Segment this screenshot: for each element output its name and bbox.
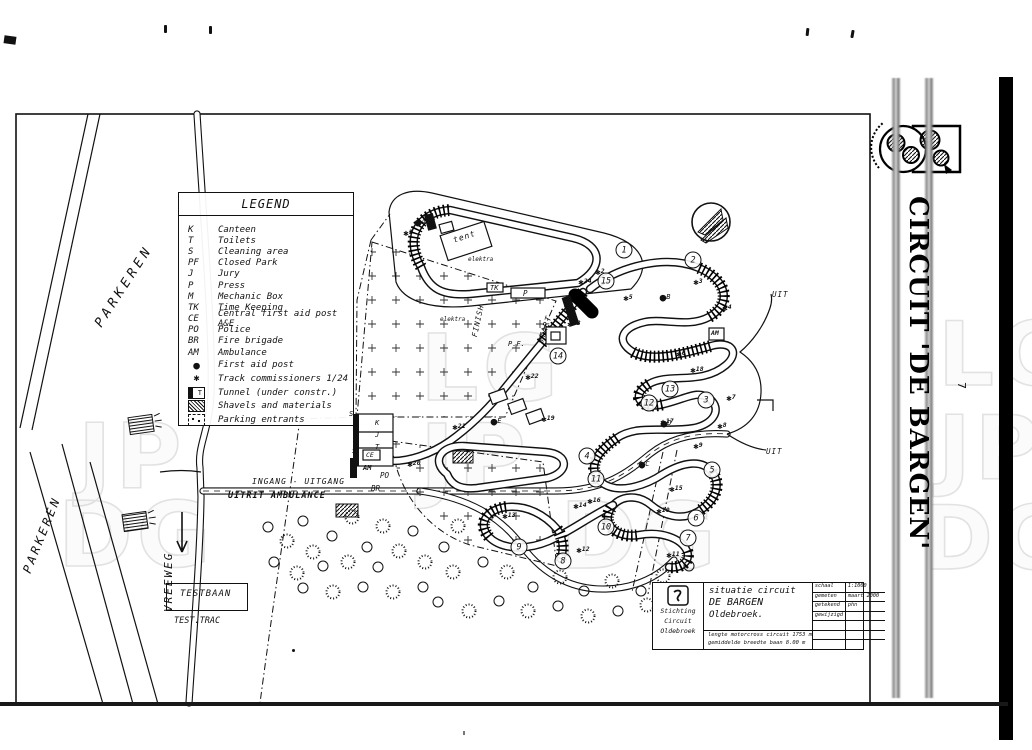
- map-label-ce: CE: [366, 451, 374, 459]
- commissioner-number: 8: [723, 421, 727, 429]
- spec-lines: lengte motorcross circuit 1753 mgemiddel…: [704, 630, 812, 649]
- spec-line: gemiddelde breedte baan 8.00 m: [708, 640, 812, 648]
- commissioner-number: 21: [458, 422, 466, 430]
- corner-marker: 10: [598, 519, 615, 536]
- binder-shadow-bar: [891, 78, 901, 698]
- legend-item-label: Parking entrants: [218, 415, 305, 425]
- legend-item-key: PO: [188, 325, 218, 335]
- commissioner-star-glyph: ✱: [193, 374, 199, 384]
- commissioner-marker: ✱21: [452, 417, 465, 433]
- commissioner-marker: ✱6: [676, 344, 685, 360]
- hatch-box-icon: [188, 400, 205, 412]
- commissioner-marker: ✱1: [403, 223, 412, 239]
- corner-marker: 12: [641, 395, 658, 412]
- meta-key: gewijzigd: [813, 612, 846, 621]
- commissioner-marker: ✱9: [693, 436, 702, 452]
- meta-row: gewijzigd: [813, 612, 885, 622]
- parking-entrant-symbol: [122, 510, 157, 531]
- meta-value: [846, 640, 885, 649]
- first-aid-dot-icon: ●: [491, 415, 498, 428]
- commissioner-marker: ✱15: [669, 479, 682, 495]
- legend-title: LEGEND: [179, 193, 353, 216]
- subject-line: situatie circuit: [709, 586, 812, 597]
- legend-item-key: T: [188, 236, 218, 246]
- map-label-uitrit-ambulance: UITRIT AMBULANCE: [228, 491, 326, 501]
- legend-item: KCanteen: [188, 224, 353, 235]
- legend-item-key: PF: [188, 258, 218, 268]
- first-aid-marker: ●D: [661, 414, 672, 430]
- legend-item-key: K: [188, 225, 218, 235]
- meta-key: [813, 631, 846, 640]
- commissioner-number: 20: [413, 459, 421, 467]
- first-aid-marker: ●A: [415, 213, 426, 229]
- map-label-s-1: S: [349, 410, 353, 418]
- commissioner-marker: ✱4: [722, 298, 731, 314]
- legend-item: CECentral first aid post A&E: [188, 314, 353, 325]
- corner-marker: 8: [555, 553, 572, 570]
- meta-row: schaal1:1000: [813, 583, 885, 593]
- first-aid-letter: D: [667, 419, 671, 427]
- meta-value: phn: [846, 602, 885, 611]
- commissioner-number: 23: [573, 319, 581, 327]
- first-aid-dot-icon: ●: [661, 417, 668, 430]
- meta-key: [813, 621, 846, 630]
- commissioner-marker: ✱11: [666, 545, 679, 561]
- first-aid-letter: C: [645, 460, 649, 468]
- first-aid-dot-icon: ●: [188, 360, 205, 371]
- map-label-testbaan: TESTBAAN: [180, 589, 231, 599]
- first-aid-letter: A: [421, 218, 425, 226]
- map-label-uit-2: UIT: [766, 447, 783, 456]
- tunnel-box-icon: T: [188, 387, 205, 399]
- first-aid-dot-icon: ●: [660, 291, 667, 304]
- corner-marker: 3: [698, 392, 715, 409]
- legend-item-key: AM: [188, 348, 218, 358]
- first-aid-letter: B: [666, 293, 670, 301]
- commissioner-marker: ✱24: [578, 272, 591, 288]
- legend-symbol-item: ✱Track commissioners 1/24: [188, 372, 353, 385]
- legend-item-key: BR: [188, 336, 218, 346]
- meta-key: gemeten: [813, 593, 846, 602]
- title-block-meta: schaal1:1000gemetenmaart 2000getekendphn…: [813, 583, 885, 649]
- map-label-bld-j: J: [375, 431, 379, 439]
- legend-item-label: Canteen: [218, 225, 256, 235]
- map-label-po: PO: [380, 471, 389, 480]
- commissioner-marker: ✱7: [726, 388, 735, 404]
- commissioner-marker: ✱23: [567, 314, 580, 330]
- scan-edge-bar: [999, 77, 1013, 740]
- commissioner-marker: ✱13: [502, 506, 515, 522]
- corner-marker: 9: [511, 539, 528, 556]
- north-arrow-icon: [692, 203, 730, 243]
- legend-item-label: Closed Park: [218, 258, 278, 268]
- spec-line: lengte motorcross circuit 1753 m: [708, 632, 812, 640]
- subject-lines: situatie circuitDE BARGENOldebroek.: [704, 583, 812, 630]
- commissioner-marker: ✱2: [595, 262, 604, 278]
- map-label-pf: P.F.: [508, 340, 525, 348]
- legend-item-label: First aid post: [218, 360, 294, 370]
- meta-value: maart 2000: [846, 593, 885, 602]
- commissioner-marker: ✱5: [623, 288, 632, 304]
- title-block: StichtingCircuitOldebroek situatie circu…: [652, 582, 864, 650]
- corner-marker: 11: [588, 471, 605, 488]
- legend-item-key: S: [188, 247, 218, 257]
- map-label-br: BR: [371, 484, 380, 493]
- legend-item-label: Tunnel (under constr.): [218, 388, 337, 398]
- legend-item-label: Shavels and materials: [218, 401, 332, 411]
- commissioner-marker: ✱10: [656, 501, 669, 517]
- commissioner-number: 15: [675, 484, 683, 492]
- commissioner-number: 13: [508, 511, 516, 519]
- legend-symbol-item: Parking entrants: [188, 414, 353, 427]
- legend-item-label: Press: [218, 281, 245, 291]
- commissioner-number: 1: [409, 228, 413, 236]
- map-label-tk: TK: [490, 284, 498, 292]
- meta-row: gemetenmaart 2000: [813, 593, 885, 603]
- commissioner-number: 9: [699, 441, 703, 449]
- commissioner-number: 10: [662, 506, 670, 514]
- meta-row: [813, 631, 885, 641]
- commissioner-number: 24: [584, 277, 592, 285]
- org-line: Stichting: [660, 607, 695, 617]
- first-aid-letter: E: [497, 417, 501, 425]
- commissioner-star-icon: ✱: [188, 374, 205, 384]
- commissioner-number: 4: [728, 303, 732, 311]
- map-label-test-trac: TEST.TRAC: [174, 616, 220, 626]
- legend-item-label: Mechanic Box: [218, 292, 283, 302]
- commissioner-number: 11: [672, 550, 680, 558]
- press-building: [511, 288, 545, 298]
- commissioner-number: 16: [593, 496, 601, 504]
- scan-bottom-edge: [0, 702, 1008, 706]
- legend-item-key: J: [188, 269, 218, 279]
- commissioner-number: 19: [547, 414, 555, 422]
- legend-item: TToilets: [188, 235, 353, 246]
- map-label-uit-1: UIT: [772, 290, 789, 299]
- shavels-area: [336, 504, 358, 517]
- title-block-subject: situatie circuitDE BARGENOldebroek. leng…: [704, 583, 813, 649]
- map-label-p: P: [523, 289, 528, 298]
- subject-line: Oldebroek.: [709, 610, 812, 621]
- legend-item-label: Jury: [218, 269, 240, 279]
- first-aid-dot-icon: ●: [639, 458, 646, 471]
- scanned-page: LGJPDGJPDGLGJPDG: [0, 0, 1032, 750]
- map-label-elektra-2: elektra: [440, 316, 465, 323]
- subject-line: DE BARGEN: [709, 597, 812, 610]
- legend-item: SCleaning area: [188, 246, 353, 257]
- commissioner-marker: ✱22: [525, 367, 538, 383]
- map-label-am-1: AM: [363, 464, 371, 472]
- corner-marker: 13: [662, 381, 679, 398]
- commissioner-number: 7: [732, 393, 736, 401]
- meta-value: [846, 631, 885, 640]
- legend-symbol-item: Shavels and materials: [188, 400, 353, 413]
- corner-marker: 14: [550, 348, 567, 365]
- legend-box: LEGEND KCanteenTToiletsSCleaning areaPFC…: [178, 192, 354, 426]
- org-line: Oldebroek: [660, 627, 695, 637]
- meta-key: [813, 640, 846, 649]
- corner-marker: 7: [680, 530, 697, 547]
- commissioner-marker: ✱14: [573, 496, 586, 512]
- commissioner-marker: ✱18: [690, 360, 703, 376]
- legend-item-label: Ambulance: [218, 348, 267, 358]
- commissioner-number: 6: [682, 349, 686, 357]
- meta-row: getekendphn: [813, 602, 885, 612]
- map-label-ingang-uitgang: INGANG - UITGANG: [252, 477, 345, 486]
- commissioner-marker: ✱3: [693, 272, 702, 288]
- first-aid-marker: ●E: [491, 412, 502, 428]
- legend-item-label: Police: [218, 325, 251, 335]
- meta-value: 1:1000: [846, 583, 885, 592]
- corner-marker: 6: [688, 510, 705, 527]
- meta-value: [846, 612, 885, 621]
- map-label-s-2: S: [352, 447, 356, 455]
- legend-item: JJury: [188, 269, 353, 280]
- corner-marker: 5: [704, 462, 721, 479]
- commissioner-number: 5: [629, 293, 633, 301]
- org-lines: StichtingCircuitOldebroek: [660, 607, 695, 636]
- shavels-area: [453, 451, 473, 463]
- legend-item-label: Cleaning area: [218, 247, 288, 257]
- commissioner-marker: ✱16: [587, 491, 600, 507]
- commissioner-marker: ✱8: [717, 416, 726, 432]
- first-aid-dot-glyph: ●: [193, 360, 200, 371]
- legend-item: PFClosed Park: [188, 258, 353, 269]
- legend-item: AMAmbulance: [188, 347, 353, 358]
- legend-item-key: TK: [188, 303, 218, 313]
- commissioner-number: 12: [582, 545, 590, 553]
- meta-row: [813, 621, 885, 631]
- map-label-elektra-1: elektra: [468, 256, 493, 263]
- tunnel-box-glyph: T: [198, 389, 202, 397]
- commissioner-marker: ✱12: [576, 540, 589, 556]
- commissioner-number: 3: [699, 277, 703, 285]
- page-number: 7: [955, 382, 968, 389]
- parking-entrant-symbol: [128, 413, 163, 434]
- legend-item-label: Toilets: [218, 236, 256, 246]
- map-label-vreeweg: VREEWEG: [162, 552, 175, 612]
- title-block-org: StichtingCircuitOldebroek: [653, 583, 704, 649]
- legend-abbrev-list: KCanteenTToiletsSCleaning areaPFClosed P…: [179, 216, 353, 427]
- legend-symbol-item: TTunnel (under constr.): [188, 386, 353, 399]
- map-label-am-2: AM: [711, 329, 719, 337]
- legend-item: MMechanic Box: [188, 291, 353, 302]
- legend-item-key: M: [188, 292, 218, 302]
- corner-marker: 4: [579, 448, 596, 465]
- corner-marker: 2: [685, 252, 702, 269]
- commissioner-number: 22: [531, 372, 539, 380]
- legend-item-key: CE: [188, 314, 218, 324]
- first-aid-marker: ●C: [639, 455, 650, 471]
- commissioner-number: 2: [601, 267, 605, 275]
- first-aid-dot-icon: ●: [415, 216, 422, 229]
- club-logo-stamp: [871, 123, 960, 174]
- commissioner-number: 18: [696, 365, 704, 373]
- map-label-bld-k: K: [375, 419, 379, 427]
- commissioner-number: 14: [579, 501, 587, 509]
- meta-row: [813, 640, 885, 649]
- meta-key: schaal: [813, 583, 846, 592]
- legend-symbol-item: ●First aid post: [188, 359, 353, 372]
- legend-item-label: Fire brigade: [218, 336, 283, 346]
- parking-box-icon: [188, 414, 205, 426]
- legend-item-label: Track commissioners 1/24: [218, 374, 348, 384]
- meta-value: [846, 621, 885, 630]
- legend-item: PPress: [188, 280, 353, 291]
- legend-item: BRFire brigade: [188, 336, 353, 347]
- side-title: CIRCUIT 'DE BARGEN': [903, 196, 933, 550]
- meta-key: getekend: [813, 602, 846, 611]
- map-label-bld-t: T: [375, 443, 379, 451]
- first-aid-marker: ●B: [660, 288, 671, 304]
- commissioner-marker: ✱19: [541, 409, 554, 425]
- corner-marker: 1: [616, 242, 633, 259]
- commissioner-marker: ✱20: [407, 454, 420, 470]
- org-line: Circuit: [660, 617, 695, 627]
- legend-item-key: P: [188, 281, 218, 291]
- org-logo-icon: [666, 585, 690, 607]
